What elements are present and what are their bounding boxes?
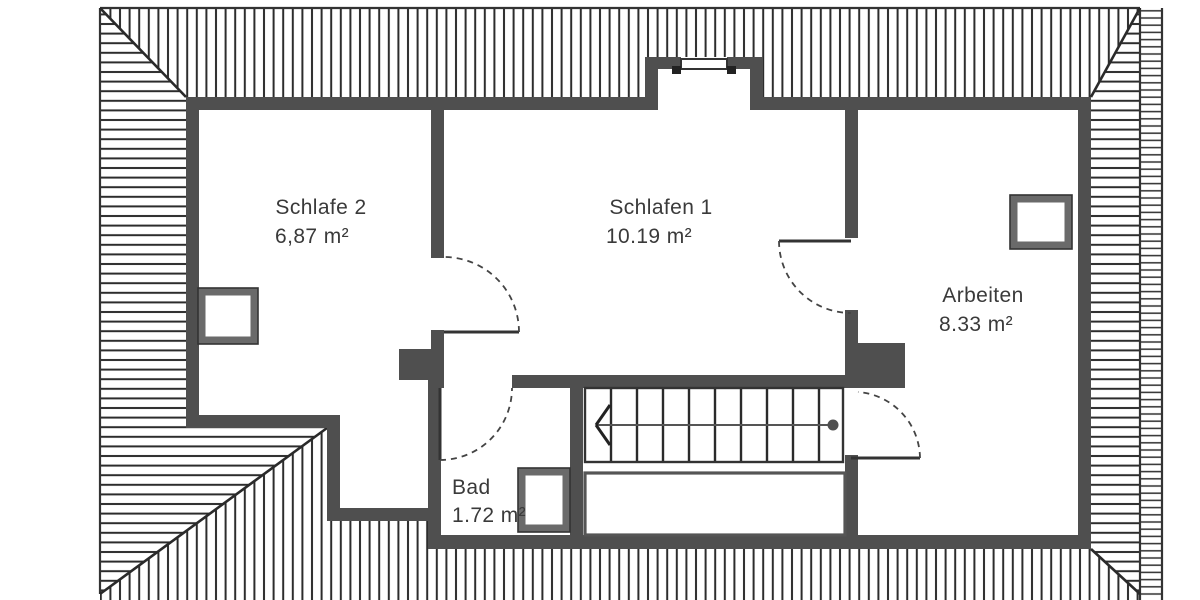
room-area-arbeiten: 8.33 m² (939, 313, 1013, 336)
wall-step-lower (327, 508, 441, 521)
stair-landing (585, 473, 845, 535)
wall-step-upper (186, 415, 340, 428)
room-area-schlafen1: 10.19 m² (606, 225, 692, 248)
room-name-schlafe2: Schlafe 2 (275, 196, 366, 219)
floor-plan-drawing: Schlafe 2 6,87 m² Schlafen 1 10.19 m² Ar… (0, 0, 1200, 600)
wall-schlafen1-right-upper (845, 97, 858, 238)
roof-plane-right (1091, 8, 1140, 594)
wall-south-stub (428, 375, 444, 388)
wall-step-vertical (327, 415, 340, 521)
room-area-bad: 1.72 m² (452, 504, 526, 527)
skylight-bad-icon (522, 472, 566, 528)
roof-plane-top (100, 8, 1140, 97)
roof-overhang-strip (1140, 8, 1162, 600)
skylight-schlafe2-icon (202, 292, 254, 340)
room-area-schlafe2: 6,87 m² (275, 225, 349, 248)
wall-left (186, 97, 199, 428)
floor-plan-page: Schlafe 2 6,87 m² Schlafen 1 10.19 m² Ar… (0, 0, 1200, 600)
wall-top-left-segment (186, 97, 645, 110)
room-name-bad: Bad (452, 476, 491, 499)
wall-divider-upper (431, 110, 444, 258)
staircase (585, 388, 845, 535)
wall-right (1078, 97, 1091, 549)
wall-schlafen1-right-lower (845, 455, 858, 549)
wall-south-main (512, 375, 845, 388)
wall-bad-right (570, 375, 583, 535)
skylight-arbeiten-icon (1014, 199, 1068, 245)
room-name-arbeiten: Arbeiten (942, 284, 1023, 307)
chimney-right-block (845, 343, 905, 388)
wall-bottom (428, 535, 1091, 549)
room-name-schlafen1: Schlafen 1 (609, 196, 712, 219)
wall-top-right-segment (763, 97, 1091, 110)
